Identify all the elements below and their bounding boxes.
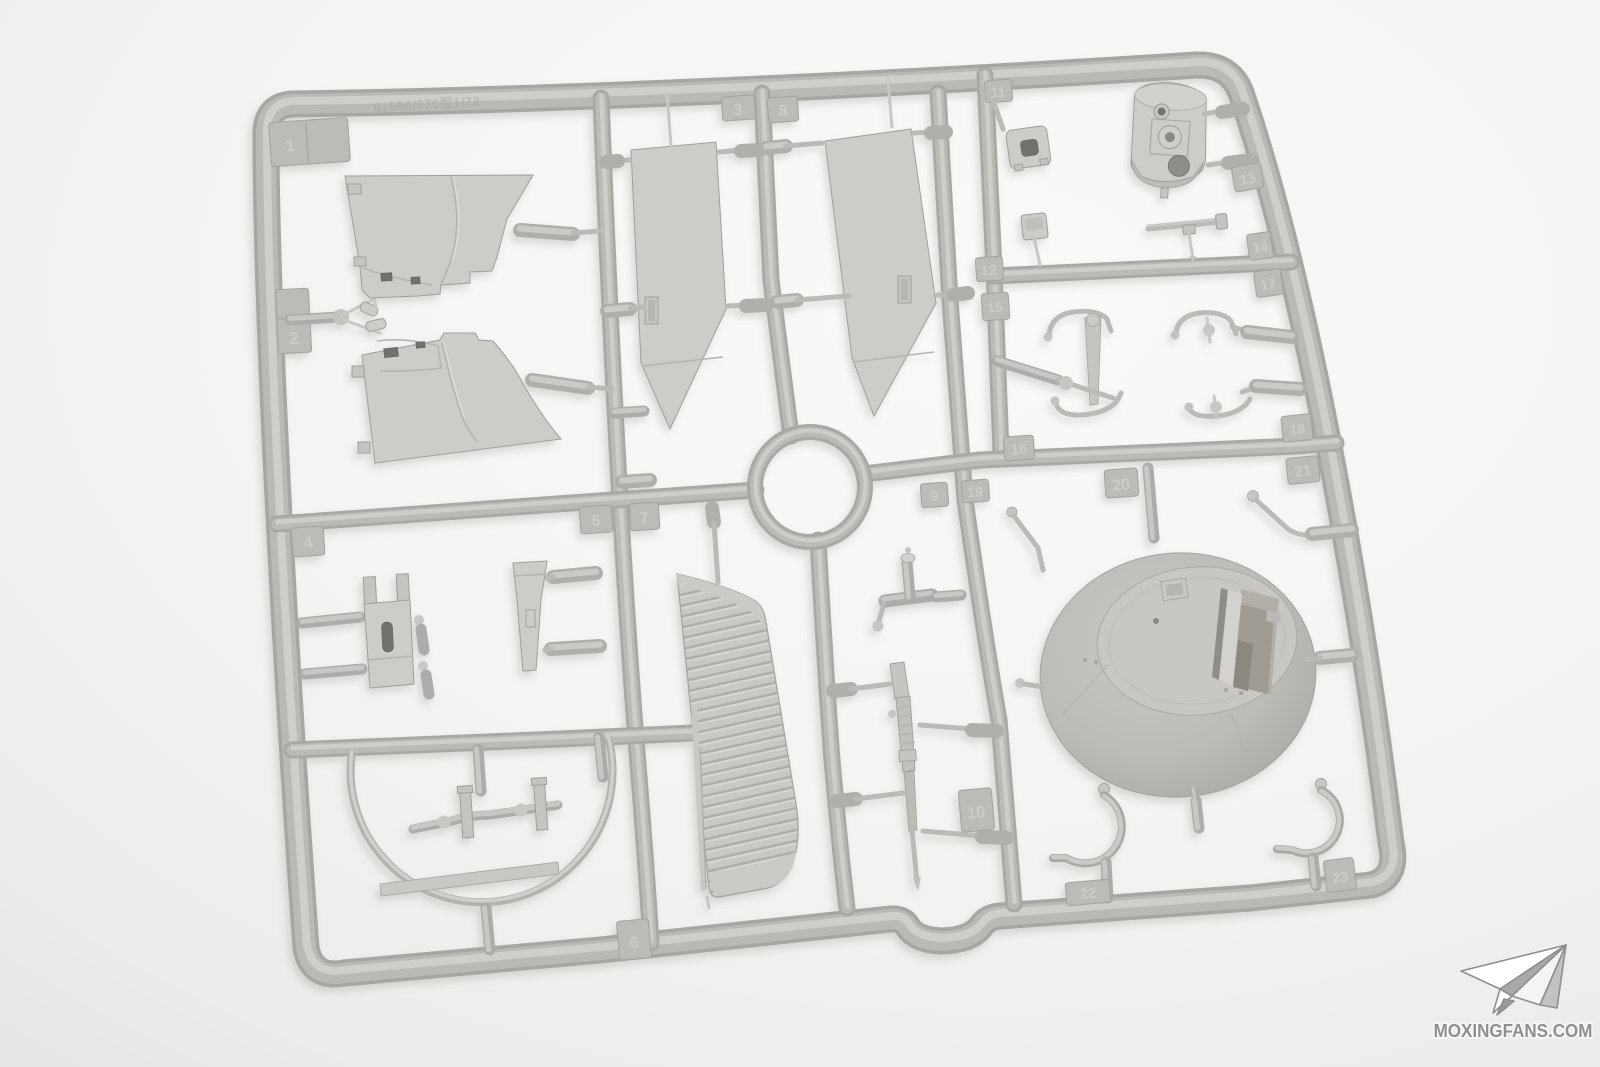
- svg-text:19: 19: [967, 483, 984, 500]
- svg-text:8: 8: [778, 103, 788, 121]
- svg-text:17: 17: [1259, 275, 1277, 293]
- svg-text:3: 3: [733, 102, 743, 120]
- svg-text:22: 22: [1080, 884, 1097, 901]
- svg-text:7: 7: [639, 510, 649, 528]
- svg-text:20: 20: [1112, 476, 1131, 494]
- svg-text:23: 23: [1332, 868, 1350, 886]
- svg-text:9: 9: [929, 488, 939, 506]
- svg-text:6: 6: [629, 935, 639, 953]
- svg-text:13: 13: [1238, 170, 1257, 190]
- svg-text:18: 18: [1289, 420, 1306, 438]
- svg-text:5: 5: [591, 513, 601, 531]
- svg-text:1: 1: [285, 136, 296, 156]
- svg-text:2: 2: [289, 329, 299, 348]
- svg-text:14: 14: [1251, 238, 1269, 256]
- svg-text:MOXINGFANS.COM: MOXINGFANS.COM: [1434, 1020, 1593, 1041]
- svg-text:16: 16: [1010, 440, 1028, 458]
- svg-text:4: 4: [303, 535, 313, 553]
- svg-text:21: 21: [1294, 462, 1312, 481]
- svg-text:10: 10: [966, 802, 987, 823]
- svg-text:12: 12: [981, 261, 998, 278]
- svg-text:15: 15: [987, 298, 1004, 315]
- svg-text:11: 11: [990, 83, 1006, 100]
